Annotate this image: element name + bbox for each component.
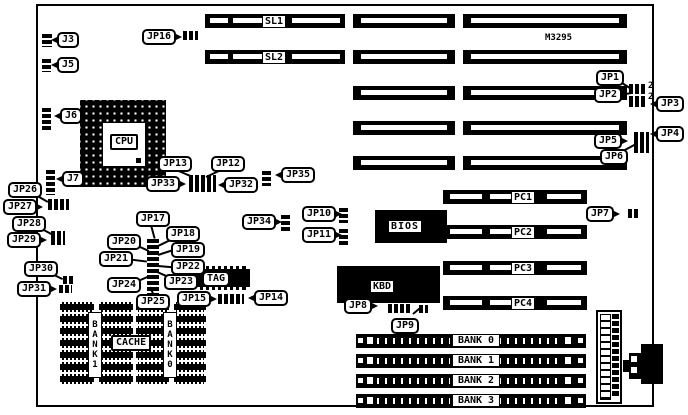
chip-label-bios: BIOS bbox=[388, 220, 422, 233]
callout-jp26: JP26 bbox=[8, 182, 42, 198]
isa-slot-sl1-seg-a: SL1 bbox=[205, 14, 345, 28]
slot-opening bbox=[471, 18, 619, 23]
callout-jp21: JP21 bbox=[99, 251, 133, 267]
callout-jp30: JP30 bbox=[24, 261, 58, 277]
callout-jp31: JP31 bbox=[17, 281, 51, 297]
slot-opening bbox=[210, 54, 228, 59]
callout-jp35: JP35 bbox=[281, 167, 315, 183]
cache-chip bbox=[99, 302, 133, 312]
slot-opening bbox=[361, 54, 447, 59]
slot-label-sl1: SL1 bbox=[262, 15, 286, 28]
callout-jp15: JP15 bbox=[177, 291, 211, 307]
callout-jp17: JP17 bbox=[136, 211, 170, 227]
callout-jp5: JP5 bbox=[594, 133, 622, 149]
keyboard-din-connector bbox=[623, 360, 630, 372]
simm-label-bank2: BANK 2 bbox=[452, 374, 500, 387]
jumper-block-jp35 bbox=[262, 169, 271, 186]
callout-jp9: JP9 bbox=[391, 318, 419, 334]
callout-jp16: JP16 bbox=[142, 29, 176, 45]
cache-bank1-label: BANK1 bbox=[88, 312, 102, 378]
cache-chip bbox=[99, 374, 133, 384]
jumper-block-jp31 bbox=[57, 285, 72, 293]
callout-jp20: JP20 bbox=[107, 234, 141, 250]
isa-slot-5-seg-b bbox=[353, 156, 455, 170]
cache-chip bbox=[174, 338, 207, 348]
callout-jp28: JP28 bbox=[12, 216, 46, 232]
slot-opening bbox=[490, 265, 512, 270]
simm-latch bbox=[564, 376, 572, 385]
slot-opening bbox=[361, 160, 447, 165]
callout-j6: J6 bbox=[60, 108, 82, 124]
callout-jp34: JP34 bbox=[242, 214, 276, 230]
simm-pins bbox=[499, 338, 561, 344]
callout-jp12: JP12 bbox=[211, 156, 245, 172]
isa-slot-sl1-seg-c bbox=[463, 14, 627, 28]
board-model-label: M3295 bbox=[545, 33, 572, 43]
simm-pins bbox=[377, 358, 450, 364]
slot-opening bbox=[450, 229, 482, 234]
cache-chip bbox=[174, 374, 207, 384]
cache-chip bbox=[99, 314, 133, 324]
callout-jp33: JP33 bbox=[146, 176, 180, 192]
callout-jp19: JP19 bbox=[171, 242, 205, 258]
callout-jp29: JP29 bbox=[7, 232, 41, 248]
chip-label-tag: TAG bbox=[202, 271, 230, 287]
slot-opening bbox=[490, 194, 512, 199]
callout-jp8: JP8 bbox=[344, 298, 372, 314]
keyboard-din-connector bbox=[641, 344, 663, 384]
jumper-block-jp16 bbox=[181, 31, 198, 40]
simm-latch bbox=[564, 356, 572, 365]
slot-opening bbox=[547, 194, 581, 199]
callout-jp10: JP10 bbox=[302, 206, 336, 222]
slot-opening bbox=[450, 194, 482, 199]
slot-opening bbox=[547, 229, 581, 234]
slot-label-pc2: PC2 bbox=[511, 226, 535, 239]
isa-slot-sl2-seg-a: SL2 bbox=[205, 50, 345, 64]
simm-latch bbox=[366, 356, 374, 365]
slot-opening bbox=[210, 18, 228, 23]
simm-latch bbox=[366, 376, 374, 385]
isa-slot-3-seg-b bbox=[353, 86, 455, 100]
callout-jp2: JP2 bbox=[594, 87, 622, 103]
slot-label-pc4: PC4 bbox=[511, 297, 535, 310]
jumper-block-j6 bbox=[42, 106, 51, 132]
slot-opening bbox=[471, 54, 619, 59]
power-connector bbox=[596, 310, 622, 404]
simm-end-cap bbox=[357, 397, 364, 404]
pin1-marker bbox=[136, 158, 141, 163]
simm-socket-bank2: BANK 2 bbox=[356, 374, 586, 388]
slot-opening bbox=[471, 160, 619, 165]
callout-jp11: JP11 bbox=[302, 227, 336, 243]
simm-socket-bank0: BANK 0 bbox=[356, 334, 586, 348]
cache-chip bbox=[99, 350, 133, 360]
power-connector-pins bbox=[612, 314, 619, 398]
simm-latch bbox=[564, 336, 572, 345]
chip-label-cpu: CPU bbox=[110, 134, 138, 150]
simm-latch bbox=[366, 336, 374, 345]
slot-opening bbox=[361, 90, 447, 95]
slot-opening bbox=[490, 300, 512, 305]
slot-opening bbox=[292, 54, 340, 59]
callout-jp3: JP3 bbox=[656, 96, 684, 112]
simm-label-bank1: BANK 1 bbox=[452, 354, 500, 367]
slot-opening bbox=[547, 300, 581, 305]
jumper-block-j5 bbox=[42, 57, 51, 72]
slot-label-pc3: PC3 bbox=[511, 262, 535, 275]
slot-opening bbox=[547, 265, 581, 270]
cache-chip bbox=[174, 326, 207, 336]
callout-jp7: JP7 bbox=[586, 206, 614, 222]
slot-opening bbox=[490, 229, 512, 234]
bios-chip: BIOS bbox=[375, 210, 447, 243]
slot-pc1: PC1 bbox=[443, 190, 587, 204]
cache-chip bbox=[174, 362, 207, 372]
slot-opening bbox=[292, 18, 340, 23]
simm-end-cap bbox=[577, 377, 584, 384]
simm-end-cap bbox=[577, 357, 584, 364]
simm-end-cap bbox=[357, 337, 364, 344]
power-connector-pins bbox=[600, 314, 611, 400]
callout-j5: J5 bbox=[57, 57, 79, 73]
callout-jp4: JP4 bbox=[656, 126, 684, 142]
callout-jp22: JP22 bbox=[171, 259, 205, 275]
callout-jp18: JP18 bbox=[166, 226, 200, 242]
simm-latch bbox=[564, 396, 572, 405]
jumper-block-jp33-jp32 bbox=[187, 175, 216, 192]
slot-pc2: PC2 bbox=[443, 225, 587, 239]
callout-j7: J7 bbox=[62, 171, 84, 187]
simm-label-bank0: BANK 0 bbox=[452, 334, 500, 347]
callout-jp27: JP27 bbox=[3, 199, 37, 215]
slot-label-pc1: PC1 bbox=[511, 191, 535, 204]
simm-pins bbox=[499, 358, 561, 364]
cpu-socket-center: CPU bbox=[102, 122, 146, 167]
slot-opening bbox=[471, 125, 619, 130]
isa-slot-4-seg-b bbox=[353, 121, 455, 135]
callout-jp1: JP1 bbox=[596, 70, 624, 86]
callout-jp6: JP6 bbox=[600, 149, 628, 165]
isa-slot-sl2-seg-c bbox=[463, 50, 627, 64]
slot-opening bbox=[450, 265, 482, 270]
callout-jp32: JP32 bbox=[224, 177, 258, 193]
callout-jp23: JP23 bbox=[164, 274, 198, 290]
isa-slot-sl2-seg-b bbox=[353, 50, 455, 64]
simm-end-cap bbox=[357, 377, 364, 384]
callout-jp25: JP25 bbox=[136, 294, 170, 310]
simm-pins bbox=[377, 398, 450, 404]
slot-opening bbox=[361, 125, 447, 130]
simm-end-cap bbox=[577, 397, 584, 404]
cache-chip bbox=[174, 350, 207, 360]
slot-opening bbox=[361, 18, 447, 23]
callout-j3: J3 bbox=[57, 32, 79, 48]
cache-chip bbox=[60, 302, 94, 312]
callout-jp13: JP13 bbox=[158, 156, 192, 172]
callout-jp14: JP14 bbox=[254, 290, 288, 306]
slot-label-sl2: SL2 bbox=[262, 51, 286, 64]
cache-bank0-label: BANK0 bbox=[163, 312, 177, 378]
slot-pc3: PC3 bbox=[443, 261, 587, 275]
jumper-block-j7 bbox=[46, 168, 55, 195]
simm-end-cap bbox=[357, 357, 364, 364]
cache-label: CACHE bbox=[111, 335, 151, 351]
simm-latch bbox=[366, 396, 374, 405]
callout-jp24: JP24 bbox=[107, 277, 141, 293]
simm-pins bbox=[377, 338, 450, 344]
isa-slot-sl1-seg-b bbox=[353, 14, 455, 28]
jumper-block-jp8 bbox=[386, 304, 411, 313]
jumper-block-jp7 bbox=[626, 209, 639, 218]
jumper-block-jp26-jp27 bbox=[46, 199, 69, 210]
slot-pc4: PC4 bbox=[443, 296, 587, 310]
simm-socket-bank3: BANK 3 bbox=[356, 394, 586, 408]
simm-pins bbox=[499, 378, 561, 384]
pin2-marker: 2 bbox=[648, 81, 653, 91]
cache-chip bbox=[174, 314, 207, 324]
cpu-socket: CPU bbox=[80, 100, 166, 187]
simm-label-bank3: BANK 3 bbox=[452, 394, 500, 407]
jumper-block-jp34 bbox=[281, 213, 290, 232]
motherboard-diagram: M3295 SL1 SL2 PC1 PC2 PC3 bbox=[0, 0, 688, 415]
simm-socket-bank1: BANK 1 bbox=[356, 354, 586, 368]
keyboard-din-pin bbox=[631, 356, 637, 362]
keyboard-din-pin bbox=[631, 367, 637, 373]
simm-pins bbox=[377, 378, 450, 384]
simm-pins bbox=[499, 398, 561, 404]
chip-label-kbd: KBD bbox=[370, 280, 394, 293]
slot-opening bbox=[450, 300, 482, 305]
jumper-block-jp15-jp14 bbox=[216, 294, 244, 304]
simm-end-cap bbox=[577, 337, 584, 344]
cache-chip bbox=[99, 362, 133, 372]
